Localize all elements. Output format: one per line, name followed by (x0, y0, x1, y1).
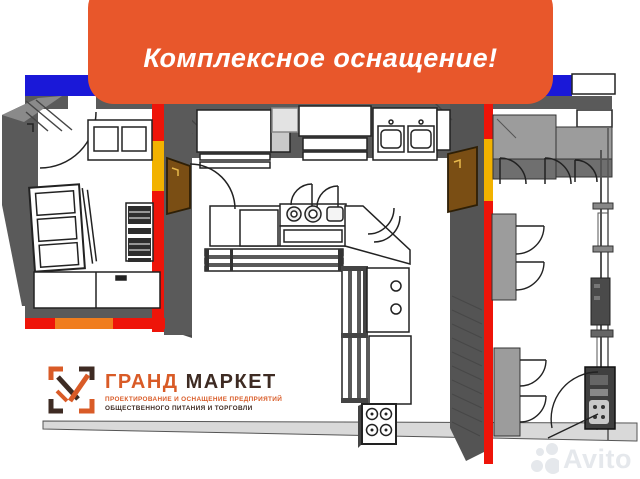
avito-watermark-text: Avito (563, 446, 632, 473)
avito-logo-icon (527, 441, 559, 477)
avito-watermark: Avito (527, 441, 632, 477)
left-room-equipment (27, 96, 160, 308)
promo-banner-text: Комплексное оснащение! (143, 43, 497, 74)
logo-tagline: ПРОЕКТИРОВАНИЕ И ОСНАЩЕНИЕ ПРЕДПРИЯТИЙ О… (105, 396, 282, 413)
company-logo: ГРАНДМАРКЕТ ПРОЕКТИРОВАНИЕ И ОСНАЩЕНИЕ П… (48, 366, 282, 414)
logo-name: ГРАНДМАРКЕТ (105, 372, 282, 392)
logo-mark-icon (48, 366, 95, 414)
logo-name-primary: ГРАНД (105, 371, 179, 393)
ad-image: Комплексное оснащение! ГРАНДМАРКЕТ ПРОЕК… (0, 0, 640, 479)
logo-name-secondary: МАРКЕТ (186, 371, 277, 393)
promo-banner: Комплексное оснащение! (88, 0, 553, 104)
logo-tagline-line2: ОБЩЕСТВЕННОГО ПИТАНИЯ И ТОРГОВЛИ (105, 405, 282, 414)
floor-strip (43, 421, 637, 441)
right-room (492, 74, 615, 440)
logo-tagline-line1: ПРОЕКТИРОВАНИЕ И ОСНАЩЕНИЕ ПРЕДПРИЯТИЙ (105, 396, 282, 405)
